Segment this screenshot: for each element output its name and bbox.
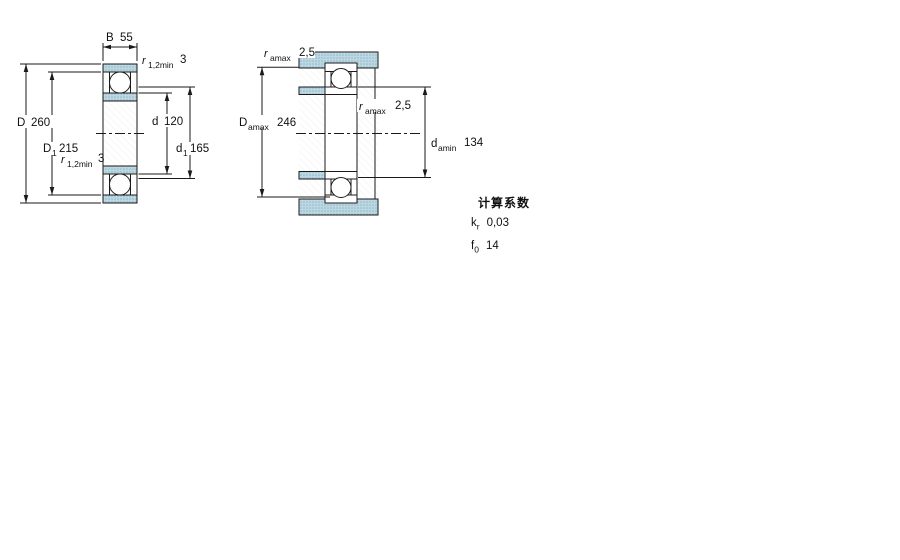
dim-Damax-value: 246 [277,117,296,129]
dim-damin-subscript: amin [438,143,457,153]
mounted-ball-bottom [331,178,351,198]
dim-d-letter: d [152,116,158,128]
dim-D1-subscript: 1 [52,148,57,158]
dim-B [103,43,137,61]
left-bearing-figure: B 55 r 1,2min 3 D 260 D 1 215 r 1,2min 3… [15,32,214,203]
shoulder-strip-bottom [299,172,325,180]
dim-r-bottom-subscript: 1,2min [67,159,93,169]
factor-f0-subscript: 0 [474,245,479,255]
outer-ring-bottom-section [103,195,137,203]
calculation-factors-title: 计算系数 [478,194,530,211]
dim-Damax-letter: D [239,117,247,129]
dim-D-letter: D [17,117,25,129]
dim-d1-value: 165 [190,143,209,155]
dim-r-bottom-value: 3 [98,153,104,165]
factor-kr-value: 0,03 [487,217,509,229]
mounted-ball-top [331,69,351,89]
dim-d-value: 120 [164,116,183,128]
ball-bottom [110,174,131,195]
factor-kr-subscript: r [477,221,480,231]
bearing-drawing-page: B 55 r 1,2min 3 D 260 D 1 215 r 1,2min 3… [0,0,900,560]
dim-r-top-value: 3 [180,54,186,66]
dim-D1 [48,72,101,195]
dim-ramax-mid-subscript: amax [365,106,387,116]
inner-ring-bottom-section [103,166,137,174]
dim-ramax-top-letter: r [264,48,269,60]
right-mounting-figure: r amax 2,5 D amax 246 r amax 2,5 d amin … [237,45,484,215]
calculation-factors: 计算系数 kr0,03 f014 [471,194,530,258]
dim-r-top-letter: r [142,55,147,67]
dim-D [20,64,101,203]
shoulder-strip-top [299,87,325,95]
dim-damin-letter: d [431,138,437,150]
dim-B-value: 55 [120,32,133,44]
dim-ramax-top-subscript: amax [270,53,292,63]
factor-kr: kr0,03 [471,216,530,234]
dim-ramax-top-value: 2,5 [299,47,315,59]
dim-D-value: 260 [31,117,50,129]
dim-B-letter: B [106,32,114,44]
inner-ring-top-section [103,93,137,101]
bearing-technical-drawing: B 55 r 1,2min 3 D 260 D 1 215 r 1,2min 3… [0,0,900,560]
dim-d1-subscript: 1 [183,148,188,158]
factor-f0-value: 14 [486,240,499,252]
dim-D1-letter: D [43,143,51,155]
ball-top [110,72,131,93]
dim-r-bottom-letter: r [61,154,66,166]
dim-ramax-mid-value: 2,5 [395,100,411,112]
dim-Damax-subscript: amax [248,122,270,132]
outer-ring-top-section [103,64,137,72]
factor-f0: f014 [471,239,530,257]
dim-damin-value: 134 [464,137,484,149]
dim-d1-letter: d [176,143,182,155]
dim-r-top-subscript: 1,2min [148,60,174,70]
